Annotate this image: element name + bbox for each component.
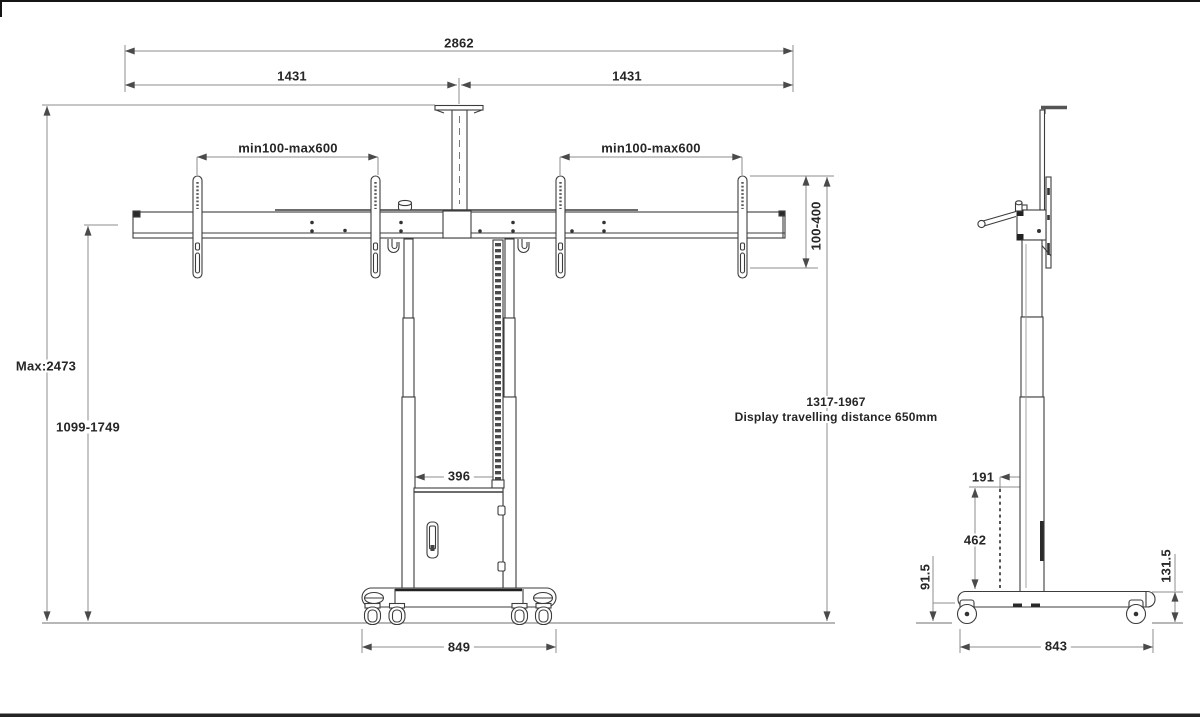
cabinet	[414, 488, 505, 590]
caster	[958, 600, 977, 624]
dim-label-wheelbase: 849	[444, 641, 474, 654]
dim-label-right-half: 1431	[612, 70, 642, 83]
side-base	[958, 592, 1155, 608]
dim-vesa-right	[560, 157, 742, 175]
caster	[512, 604, 528, 625]
dim-label-bracket-height: 100-400	[810, 201, 823, 250]
dim-label-height-range: 1099-1749	[52, 421, 124, 434]
chain-mount-strip	[1040, 521, 1044, 561]
vesa-bracket	[371, 176, 380, 278]
door-latch	[498, 562, 505, 571]
dim-label-base-depth: 843	[1041, 640, 1071, 653]
technical-drawing-canvas: 2862 1431 1431 min100-max600 min100-max6…	[0, 0, 1200, 720]
vesa-bracket	[738, 176, 747, 278]
border-lines	[0, 0, 1200, 717]
dim-label-column-width: 396	[444, 470, 474, 483]
caster	[365, 604, 381, 625]
dim-label-depth-offset: 191	[972, 471, 994, 484]
camera-mount-pole	[435, 106, 483, 212]
dim-label-caster-height: 91.5	[919, 564, 932, 590]
pole-side	[1040, 110, 1045, 210]
caster	[536, 604, 552, 625]
dim-label-travel-range: 1317-1967	[802, 396, 869, 408]
dim-label-left-half: 1431	[277, 70, 307, 83]
dim-label-base-height: 131.5	[1160, 549, 1173, 583]
caster	[389, 604, 405, 625]
dim-label-vesa-right: min100-max600	[601, 142, 700, 155]
column-side	[1020, 240, 1044, 592]
dim-label-chain-height: 462	[960, 534, 990, 547]
front-view	[133, 106, 785, 625]
vesa-bracket	[193, 176, 202, 278]
door-latch	[498, 506, 505, 515]
dim-half-widths	[125, 78, 793, 104]
dimension-lines	[42, 45, 1183, 653]
dim-label-vesa-left: min100-max600	[238, 142, 337, 155]
drawing-linework	[0, 0, 1200, 720]
pull-handle-side	[978, 201, 1022, 228]
dim-vesa-left	[197, 157, 378, 175]
center-mount	[443, 211, 471, 238]
cable-chain	[492, 240, 504, 488]
dim-label-travel-note: Display travelling distance 650mm	[731, 411, 942, 423]
cable-grommet	[399, 200, 412, 210]
caster	[1127, 600, 1146, 624]
dim-label-max-height: Max:2473	[12, 360, 80, 373]
vesa-bracket	[556, 176, 565, 278]
dim-label-overall-width: 2862	[444, 37, 474, 50]
